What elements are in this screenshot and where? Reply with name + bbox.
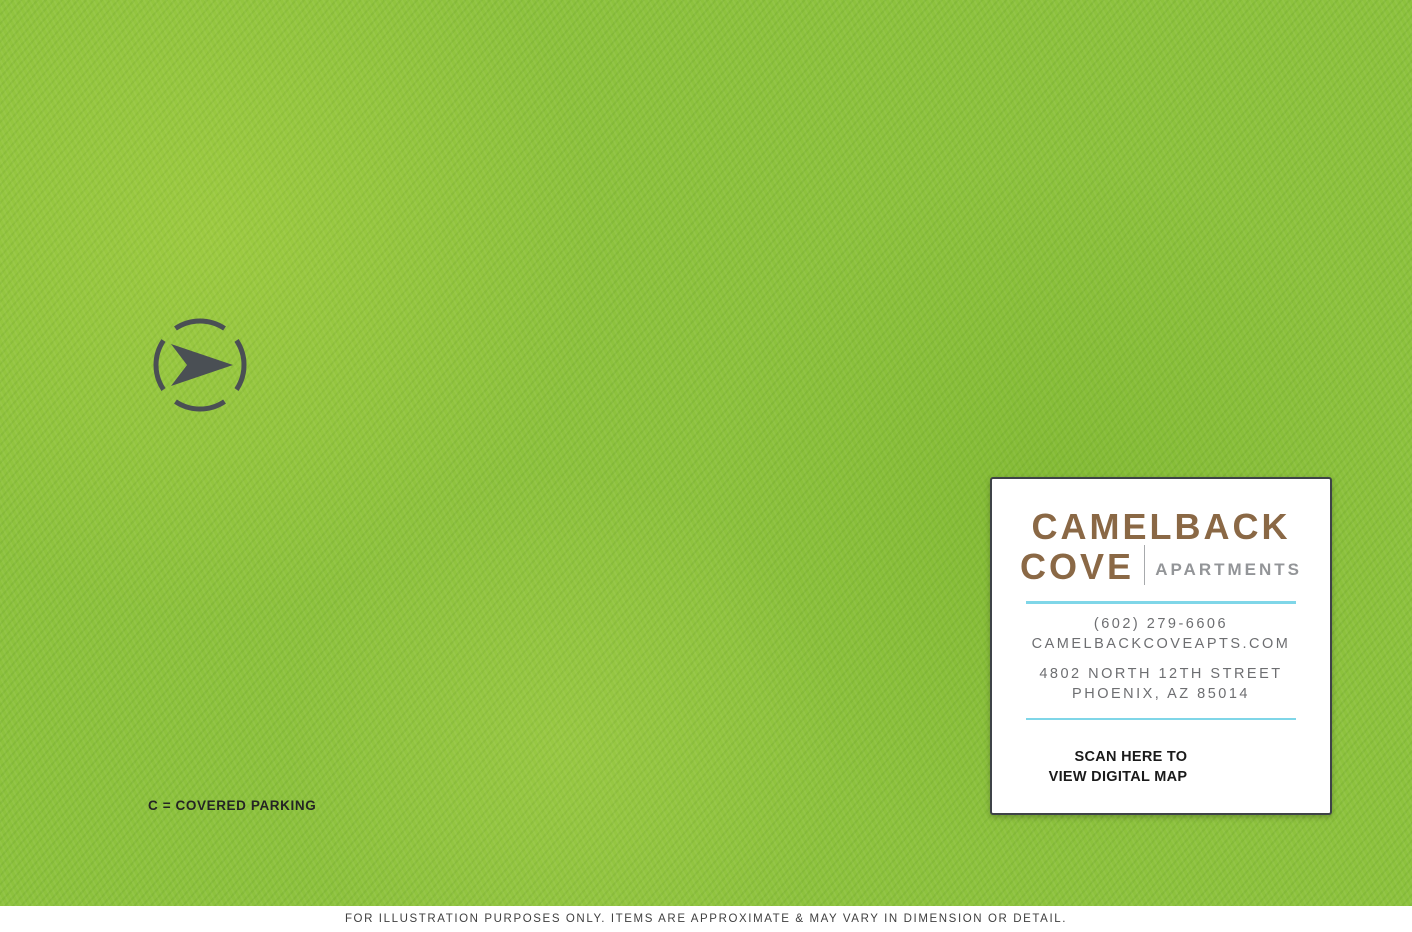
qr-code bbox=[1201, 732, 1273, 804]
site-map: C = COVERED PARKING CAMELBACK COVE APART… bbox=[0, 0, 1412, 932]
phone-number: (602) 279-6606 bbox=[1020, 616, 1302, 632]
address-line1: 4802 NORTH 12TH STREET bbox=[1020, 666, 1302, 682]
scan-instruction: SCAN HERE TO VIEW DIGITAL MAP bbox=[1049, 748, 1188, 787]
divider-line-top bbox=[1026, 601, 1296, 604]
disclaimer-footer: FOR ILLUSTRATION PURPOSES ONLY. ITEMS AR… bbox=[0, 906, 1412, 932]
legend-covered-parking-note: C = COVERED PARKING bbox=[148, 798, 316, 813]
info-panel: CAMELBACK COVE APARTMENTS (602) 279-6606… bbox=[990, 477, 1332, 815]
address-line2: PHOENIX, AZ 85014 bbox=[1020, 686, 1302, 702]
brand-apartments: APARTMENTS bbox=[1155, 560, 1302, 585]
compass-arrow bbox=[171, 344, 233, 386]
divider-line-bottom bbox=[1026, 718, 1296, 721]
website: CAMELBACKCOVEAPTS.COM bbox=[1020, 636, 1302, 652]
brand-camelback: CAMELBACK bbox=[1020, 509, 1302, 545]
compass-rose bbox=[141, 306, 259, 429]
brand-divider bbox=[1144, 545, 1145, 585]
brand-cove: COVE bbox=[1020, 549, 1134, 585]
